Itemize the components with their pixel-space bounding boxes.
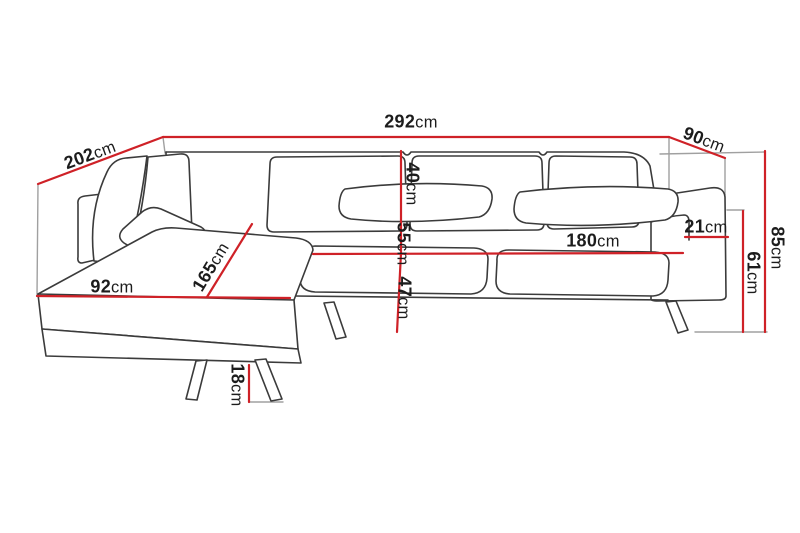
sofa-dimension-diagram: 202cm 292cm 90cm 85cm 61cm 21cm 180cm 40… (0, 0, 800, 533)
dimension-seat-height-label: 47cm (395, 276, 414, 319)
sofa-line-art (0, 0, 800, 533)
dimension-armrest-width-label: 21cm (684, 218, 727, 237)
sofa-outline (38, 152, 726, 401)
dimension-seat-width-label: 180cm (566, 232, 620, 251)
dimension-chaise-width-label: 92cm (90, 278, 133, 297)
dimension-seat-depth-label: 55cm (394, 222, 413, 265)
dimension-backrest-height-label: 40cm (403, 162, 422, 205)
dimension-armrest-height-label: 61cm (744, 251, 763, 294)
dimension-leg-height-label: 18cm (228, 363, 247, 406)
dimension-overall-height-label: 85cm (768, 226, 787, 269)
dimension-total-width-label: 292cm (384, 113, 438, 132)
dimension-line-180 (313, 253, 683, 254)
